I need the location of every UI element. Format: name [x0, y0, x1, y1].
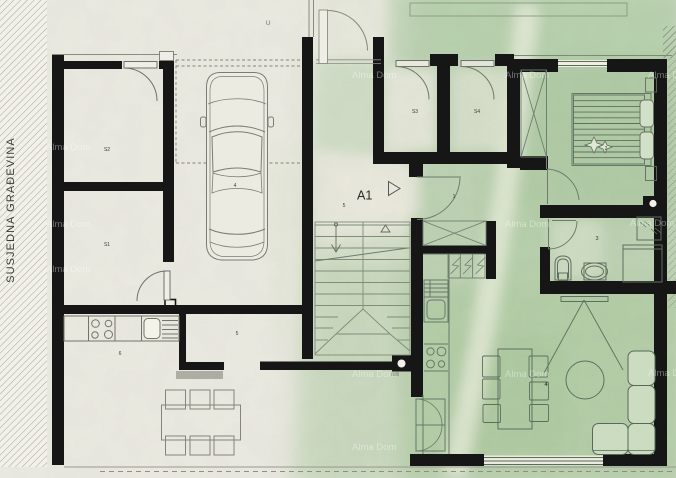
- svg-text:3: 3: [595, 236, 598, 242]
- svg-text:Alma Dom: Alma Dom: [505, 70, 549, 81]
- svg-text:Alma Dom: Alma Dom: [630, 218, 674, 229]
- svg-text:5: 5: [236, 331, 239, 337]
- svg-text:Alma Dom: Alma Dom: [352, 70, 396, 81]
- svg-text:SUSJEDNA GRAĐEVINA: SUSJEDNA GRAĐEVINA: [5, 137, 17, 283]
- svg-text:Alma Dom: Alma Dom: [352, 442, 396, 453]
- svg-text:S4: S4: [474, 109, 480, 115]
- svg-text:6: 6: [119, 351, 122, 357]
- svg-text:S2: S2: [104, 147, 110, 153]
- svg-text:Alma Dom: Alma Dom: [648, 70, 676, 81]
- svg-text:2: 2: [605, 146, 608, 152]
- svg-text:Alma Dom: Alma Dom: [505, 369, 549, 380]
- svg-text:Alma Dom: Alma Dom: [46, 142, 90, 153]
- svg-text:Alma Dom: Alma Dom: [46, 264, 90, 275]
- svg-text:Alma Dom: Alma Dom: [46, 219, 90, 230]
- svg-text:U: U: [266, 21, 270, 27]
- svg-text:S3: S3: [412, 109, 418, 115]
- svg-text:Alma Dom: Alma Dom: [648, 368, 676, 379]
- svg-text:1: 1: [453, 194, 456, 200]
- svg-text:Alma Dom: Alma Dom: [352, 369, 396, 380]
- svg-text:4: 4: [234, 183, 237, 189]
- svg-text:Alma Dom: Alma Dom: [505, 219, 549, 230]
- svg-text:S1: S1: [104, 242, 110, 248]
- svg-text:5: 5: [343, 203, 346, 209]
- svg-text:A1: A1: [357, 189, 372, 203]
